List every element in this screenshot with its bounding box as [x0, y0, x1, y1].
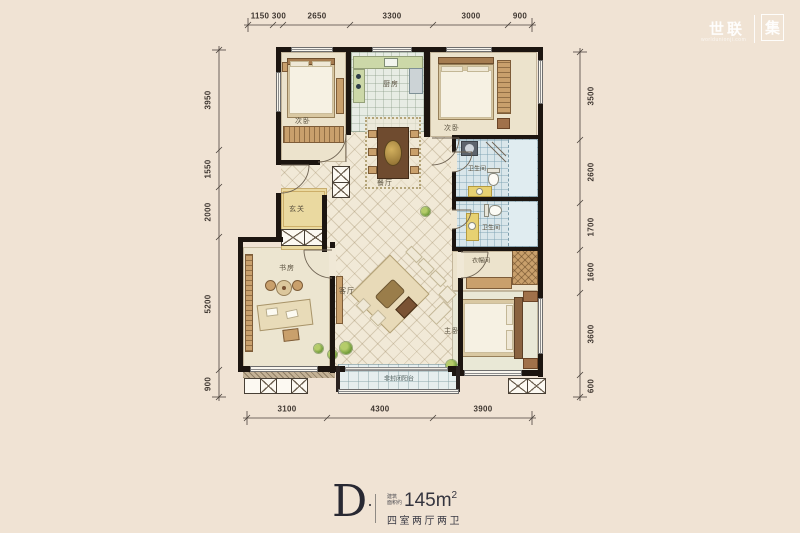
dining-chair	[410, 130, 419, 138]
shower-stall	[508, 202, 537, 246]
window	[276, 72, 281, 112]
layout-text: 四室两厅两卫	[387, 512, 462, 527]
bed-headboard	[438, 57, 494, 64]
plant	[340, 342, 352, 354]
dim-right: 3500	[587, 87, 596, 106]
platform-cell	[277, 379, 293, 393]
shelf	[336, 78, 344, 114]
dim-right: 1700	[587, 218, 596, 237]
nightstand	[523, 291, 538, 302]
fridge	[409, 68, 423, 94]
window	[446, 47, 492, 52]
wall	[238, 242, 243, 372]
wall	[455, 135, 538, 139]
plant	[421, 207, 430, 216]
area-row: 建筑 面积约 145m 2	[387, 491, 457, 510]
floorplan-page: 1150 300 2650 3300 3000 900 3100 4300 39…	[0, 0, 800, 533]
stove-burner	[356, 84, 361, 89]
unit-summary: D 建筑 面积约 145m 2 四室两厅两卫	[330, 478, 550, 530]
dim-left: 900	[204, 377, 213, 391]
platform-cell	[509, 379, 528, 393]
sliding-door	[345, 367, 448, 371]
plant	[314, 344, 323, 353]
room-label-kitchen: 厨房	[383, 79, 399, 89]
dim-left: 2000	[204, 203, 213, 222]
dim-right: 2600	[587, 163, 596, 182]
dining-chair	[410, 148, 419, 156]
door-opening	[329, 248, 336, 276]
nightstand	[497, 118, 510, 129]
dresser	[466, 277, 512, 289]
room-label-living: 客厅	[339, 286, 355, 296]
ac-platform	[244, 378, 308, 394]
dim-right: 600	[587, 379, 596, 393]
nightstand	[523, 358, 538, 369]
pillow	[506, 330, 513, 350]
platform-cell	[245, 379, 261, 393]
wardrobe	[512, 249, 538, 285]
dining-chair	[368, 130, 377, 138]
room-label-bath2: 卫生间	[482, 223, 500, 232]
room-label-bedroom-tr: 次卧	[444, 123, 460, 133]
dim-top: 900	[513, 12, 527, 21]
wardrobe	[497, 60, 511, 114]
area-value: 145m	[404, 491, 452, 510]
room-label-closet: 衣帽间	[472, 256, 490, 265]
balcony-railing	[338, 389, 459, 394]
cabinet-cell	[333, 167, 349, 183]
pillow	[312, 61, 331, 67]
wall	[346, 47, 351, 135]
wall	[322, 195, 327, 252]
pillow	[467, 66, 489, 72]
dim-left: 5200	[204, 295, 213, 314]
wall	[238, 237, 283, 242]
dim-left: 3950	[204, 91, 213, 110]
platform-cell	[528, 379, 546, 393]
footer-divider	[375, 494, 376, 523]
dim-right: 3600	[587, 325, 596, 344]
window	[464, 370, 522, 376]
door-opening	[451, 152, 457, 172]
shower-stall	[508, 140, 537, 196]
pillow	[290, 61, 309, 67]
watermark-divider	[754, 15, 755, 43]
dim-bottom: 3900	[474, 405, 493, 414]
room-label-entry: 玄关	[289, 204, 305, 214]
wash-basin	[468, 222, 476, 230]
pillow	[441, 66, 463, 72]
unit-letter: D	[332, 480, 367, 524]
dim-top: 3000	[462, 12, 481, 21]
chair	[292, 280, 303, 291]
dim-bottom: 3100	[278, 405, 297, 414]
door-opening	[457, 252, 464, 278]
table-centerpiece	[384, 140, 402, 166]
tv-cabinet	[336, 276, 343, 324]
window	[538, 298, 543, 354]
dim-top: 2650	[308, 12, 327, 21]
wall	[276, 193, 281, 242]
cabinet-cell	[282, 230, 305, 245]
wash-basin	[476, 188, 483, 195]
wall	[424, 47, 430, 137]
room-label-study: 书房	[279, 263, 295, 273]
dim-top: 3300	[383, 12, 402, 21]
toilet	[489, 205, 502, 216]
room-label-balcony: 非封闭阳台	[384, 374, 414, 383]
dim-bottom: 4300	[371, 405, 390, 414]
toilet	[488, 173, 499, 186]
shoe-cabinet	[281, 229, 327, 246]
dim-top: 1150	[251, 12, 270, 21]
hall-cabinet	[332, 166, 350, 198]
dim-right: 1600	[587, 263, 596, 282]
watermark-brand: 世联	[709, 18, 745, 39]
kitchen-sink	[384, 58, 398, 67]
desk-paper	[266, 307, 279, 316]
dining-chair	[410, 166, 419, 174]
platform-cell	[292, 379, 307, 393]
area-prefix: 建筑 面积约	[387, 494, 402, 506]
window	[372, 47, 412, 52]
window	[538, 60, 543, 104]
stove-burner	[356, 74, 361, 79]
footer-dot	[369, 504, 371, 506]
room-label-dining: 餐厅	[377, 178, 393, 188]
wall	[456, 197, 538, 201]
dining-chair	[368, 166, 377, 174]
wall	[276, 160, 320, 165]
washing-machine-door	[465, 144, 474, 153]
door-opening	[451, 210, 457, 229]
area-superscript: 2	[452, 491, 458, 501]
bookshelf	[245, 254, 253, 352]
window	[250, 366, 318, 372]
nightstand	[282, 62, 288, 72]
watermark-site: worldunionji.com	[701, 37, 746, 43]
room-label-bedroom-tl: 次卧	[295, 116, 311, 126]
bed-headboard	[514, 297, 523, 359]
ac-platform	[508, 378, 546, 394]
window	[291, 47, 333, 52]
bed-duvet	[289, 66, 333, 114]
room-label-master: 主卧	[444, 326, 460, 336]
room-label-bath1: 卫生间	[468, 164, 486, 173]
dim-left: 1550	[204, 160, 213, 179]
desk-chair	[282, 328, 299, 342]
pillow	[506, 305, 513, 325]
cabinet-cell	[333, 183, 349, 198]
ledge	[243, 372, 335, 378]
watermark: 世联 worldunionji.com 集	[700, 10, 795, 50]
wardrobe	[283, 126, 344, 143]
platform-cell	[261, 379, 277, 393]
tea-cup	[282, 286, 286, 290]
area-prefix-line2: 面积约	[387, 500, 402, 506]
dim-top: 300	[272, 12, 286, 21]
wall	[452, 247, 538, 251]
chair	[265, 280, 276, 291]
bed-duvet	[440, 70, 492, 118]
watermark-badge: 集	[761, 14, 784, 41]
dining-chair	[368, 148, 377, 156]
